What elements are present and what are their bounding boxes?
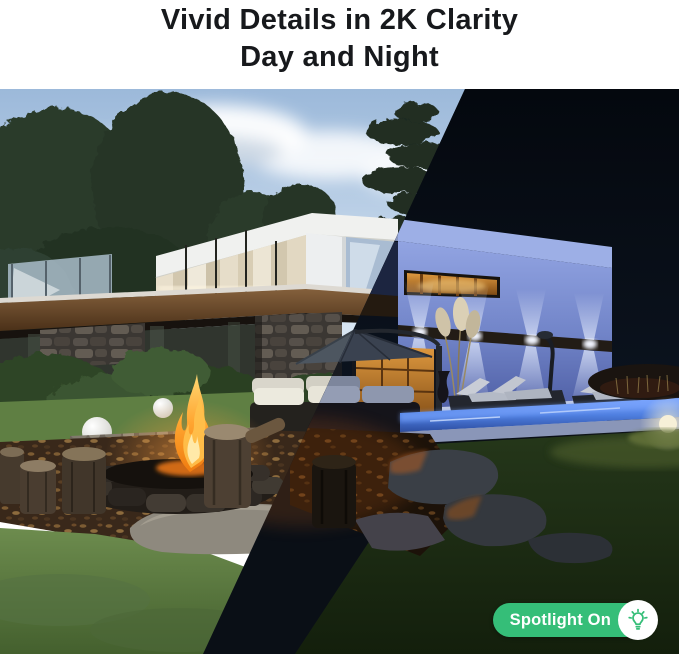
day-night-house-scene	[0, 89, 679, 654]
spotlight-badge: Spotlight On	[493, 603, 655, 637]
lightbulb-glyph	[625, 607, 651, 633]
lightbulb-shine-icon	[618, 600, 658, 640]
header: Vivid Details in 2K Clarity Day and Nigh…	[0, 0, 679, 89]
title-line-1: Vivid Details in 2K Clarity	[161, 2, 518, 39]
product-marketing-image: Vivid Details in 2K Clarity Day and Nigh…	[0, 0, 679, 654]
night-stump	[312, 455, 356, 528]
title-line-2: Day and Night	[240, 39, 439, 76]
badge-label: Spotlight On	[510, 611, 611, 630]
